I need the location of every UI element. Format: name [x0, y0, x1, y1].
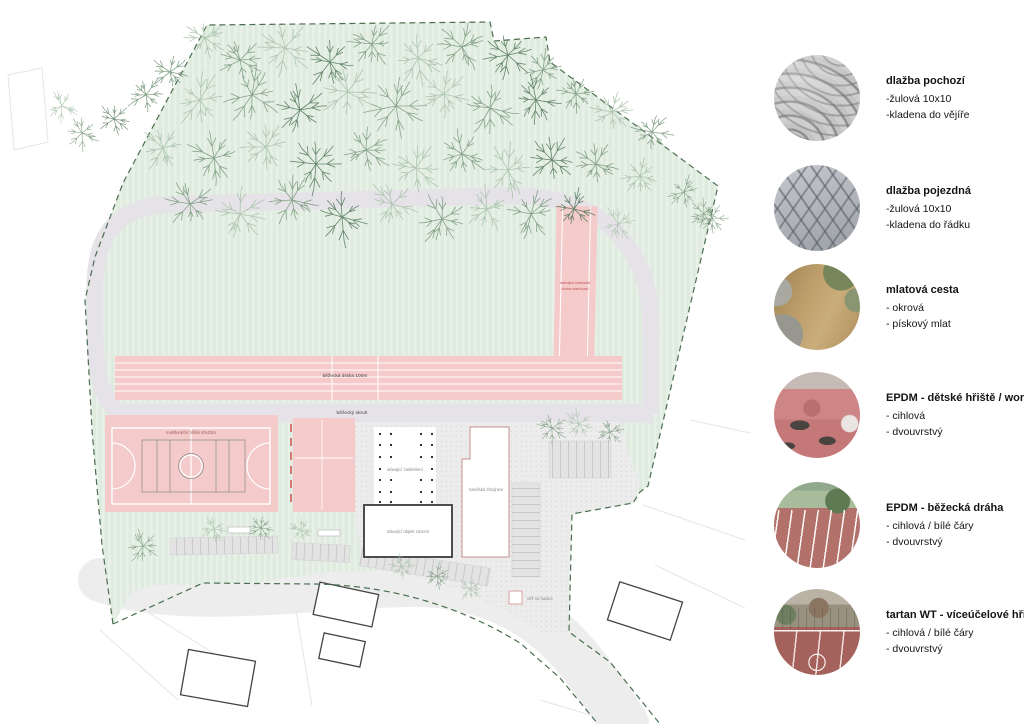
canopy-column	[420, 479, 422, 481]
legend-title: EPDM - dětské hřiště / workout	[886, 392, 1024, 404]
canopy-column	[420, 491, 422, 493]
material-photo-paving-grid	[774, 165, 860, 251]
canopy-column	[390, 491, 392, 493]
canopy-column	[379, 491, 381, 493]
canopy-column	[379, 468, 381, 470]
canopy-column	[431, 456, 433, 458]
label-track-straight: běžecká dráha 100m	[323, 373, 368, 379]
canopy-column	[431, 491, 433, 493]
canopy-column	[431, 433, 433, 435]
legend-line: -žulová 10x10	[886, 91, 969, 107]
tree-symbol	[128, 78, 163, 112]
material-photo-epdm-track	[774, 482, 860, 568]
legend-line: -kladena do vějíře	[886, 107, 969, 123]
site-plan-sheet: běžecká dráha 100m běžecký okruh multifu…	[0, 0, 1024, 724]
canopy-column	[420, 444, 422, 446]
canopy-column	[379, 501, 381, 503]
epdm-playground-area	[291, 418, 355, 512]
site-plan: běžecká dráha 100m běžecký okruh multifu…	[0, 0, 765, 724]
legend-line: - dvouvrstvý	[886, 534, 1003, 550]
label-fire-track-1: stávající hasičská	[560, 281, 591, 285]
canopy-column	[390, 479, 392, 481]
canopy-column	[390, 433, 392, 435]
canopy-column	[420, 433, 422, 435]
legend-line: - cihlová / bílé čáry	[886, 625, 1024, 641]
legend-title: dlažba pochozí	[886, 75, 969, 87]
legend-line: - dvouvrstvý	[886, 424, 1024, 440]
canopy-column	[390, 456, 392, 458]
legend-line: - dvouvrstvý	[886, 641, 1024, 657]
legend-line: - pískový mlat	[886, 316, 959, 332]
canopy-column	[431, 444, 433, 446]
legend-line: - cihlová / bílé čáry	[886, 518, 1003, 534]
legend-title: tartan WT - víceúčelové hřiště	[886, 609, 1024, 621]
canopy-column	[390, 444, 392, 446]
material-photo-epdm-playground	[774, 372, 860, 458]
legend-title: mlatová cesta	[886, 284, 959, 296]
legend-line: -kladena do řádku	[886, 217, 971, 233]
material-photo-tartan-court	[774, 589, 860, 675]
running-track-straight	[115, 356, 622, 400]
canopy-column	[420, 501, 422, 503]
canopy-column	[379, 444, 381, 446]
tree-symbol	[101, 106, 130, 136]
label-track-loop: běžecký okruh	[337, 410, 368, 416]
tree-symbol	[68, 118, 99, 153]
legend-line: -žulová 10x10	[886, 201, 971, 217]
legend-line: - okrová	[886, 300, 959, 316]
canopy-column	[379, 456, 381, 458]
label-hose-tower: věž na hadice	[527, 596, 554, 601]
label-fire-track-2: dráha startovací	[561, 287, 589, 291]
material-photo-dirt-path	[774, 264, 860, 350]
canopy-column	[420, 456, 422, 458]
hose-tower	[509, 591, 522, 604]
label-facility-building: stávající objekt zázemí	[387, 529, 430, 534]
canopy-column	[431, 479, 433, 481]
label-fire-station: hasičská zbrojnice	[469, 487, 504, 492]
legend-line: - cihlová	[886, 408, 1024, 424]
label-canopy: stávající zastřešení	[387, 467, 424, 472]
legend-title: dlažba pojezdná	[886, 185, 971, 197]
canopy-column	[390, 501, 392, 503]
material-photo-paving-fan	[774, 55, 860, 141]
material-legend: dlažba pochozí -žulová 10x10 -kladena do…	[770, 0, 1024, 724]
canopy-column	[379, 479, 381, 481]
label-multi-court: multifunkční hřiště 40x20m	[166, 430, 216, 435]
canopy-column	[431, 501, 433, 503]
canopy-column	[431, 468, 433, 470]
legend-title: EPDM - běžecká dráha	[886, 502, 1003, 514]
canopy-column	[379, 433, 381, 435]
